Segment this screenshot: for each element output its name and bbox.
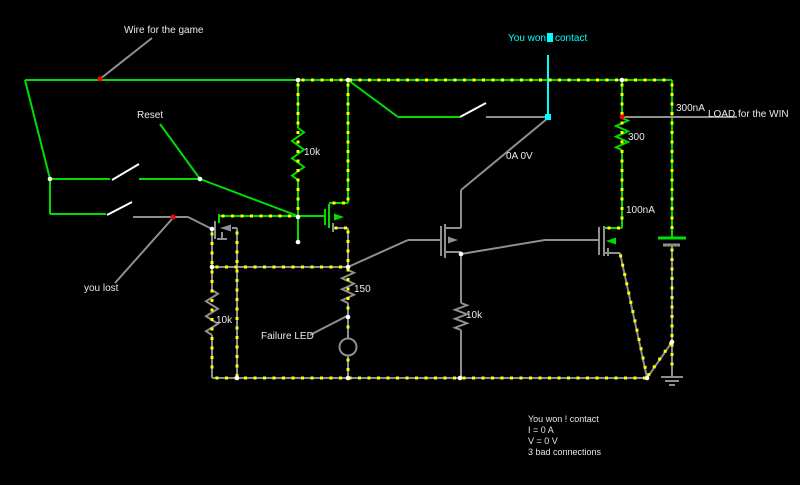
circuit-canvas[interactable]: Wire for the game Reset you lost Failure… (0, 0, 800, 485)
status-panel: You won ! contact I = 0 A V = 0 V 3 bad … (528, 414, 601, 458)
status-line: V = 0 V (528, 436, 601, 447)
resistor-mid-value: 10k (466, 310, 482, 321)
resistors[interactable] (206, 118, 628, 335)
ground-symbol[interactable] (661, 377, 683, 385)
status-line: I = 0 A (528, 425, 601, 436)
failure-led-label[interactable]: Failure LED (261, 331, 314, 342)
status-line: You won ! contact (528, 414, 601, 425)
resistor-pullup-value: 10k (304, 147, 320, 158)
mosfet-center[interactable] (441, 224, 461, 258)
resistor-load-value: 300 (628, 132, 645, 143)
resistor-led-value: 150 (354, 284, 371, 295)
drain-reading: 0A 0V (506, 151, 533, 162)
reset-label[interactable]: Reset (137, 110, 163, 121)
text-cursor (547, 33, 553, 42)
load-current: 300nA (676, 103, 705, 114)
you-lost-label[interactable]: you lost (84, 283, 118, 294)
load-for-win-label[interactable]: LOAD for the WIN (708, 109, 789, 120)
mosfet-right[interactable] (599, 226, 616, 256)
schematic (0, 0, 800, 485)
junction-posts (48, 78, 675, 381)
battery[interactable] (658, 238, 686, 245)
status-line: 3 bad connections (528, 447, 601, 458)
selected-wire-cyan[interactable] (545, 55, 551, 120)
neutral-wires[interactable] (133, 117, 737, 378)
editing-label[interactable]: You woncontact (508, 33, 587, 44)
editing-label-suffix: contact (555, 33, 587, 44)
resistor-left-value: 10k (216, 315, 232, 326)
mosfet-left[interactable] (215, 214, 231, 239)
failure-led-lamp[interactable] (340, 339, 357, 356)
gate-current: 100nA (626, 205, 655, 216)
leader-lines (100, 38, 347, 335)
wire-for-game-label[interactable]: Wire for the game (124, 25, 203, 36)
editing-label-prefix: You won (508, 33, 546, 44)
